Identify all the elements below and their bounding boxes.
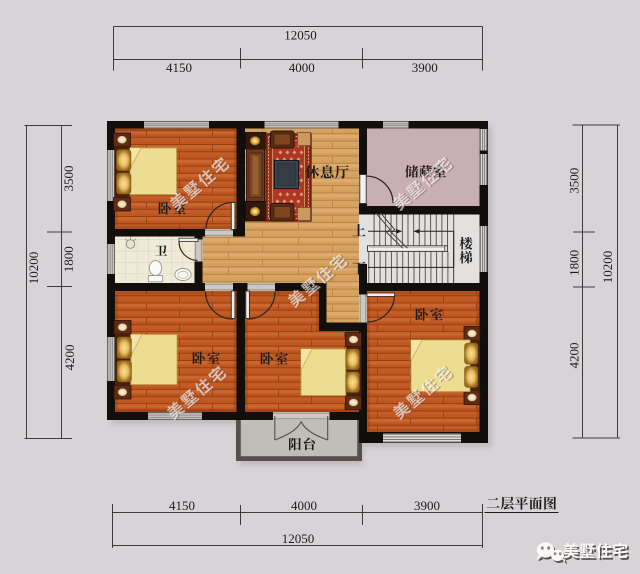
svg-text:4150: 4150 [169, 498, 195, 513]
svg-text:4200: 4200 [62, 345, 77, 371]
svg-text:3500: 3500 [61, 166, 76, 192]
svg-text:4000: 4000 [291, 498, 317, 513]
svg-text:10200: 10200 [26, 252, 41, 285]
svg-text:4000: 4000 [289, 60, 315, 75]
svg-text:12050: 12050 [282, 531, 315, 546]
svg-text:4200: 4200 [567, 343, 582, 369]
svg-text:1800: 1800 [61, 246, 76, 272]
svg-text:10200: 10200 [600, 251, 615, 284]
svg-text:3900: 3900 [414, 498, 440, 513]
svg-text:12050: 12050 [284, 28, 317, 43]
svg-text:3500: 3500 [567, 168, 582, 194]
svg-text:1800: 1800 [567, 250, 582, 276]
svg-text:3900: 3900 [412, 60, 438, 75]
svg-text:4150: 4150 [166, 60, 192, 75]
